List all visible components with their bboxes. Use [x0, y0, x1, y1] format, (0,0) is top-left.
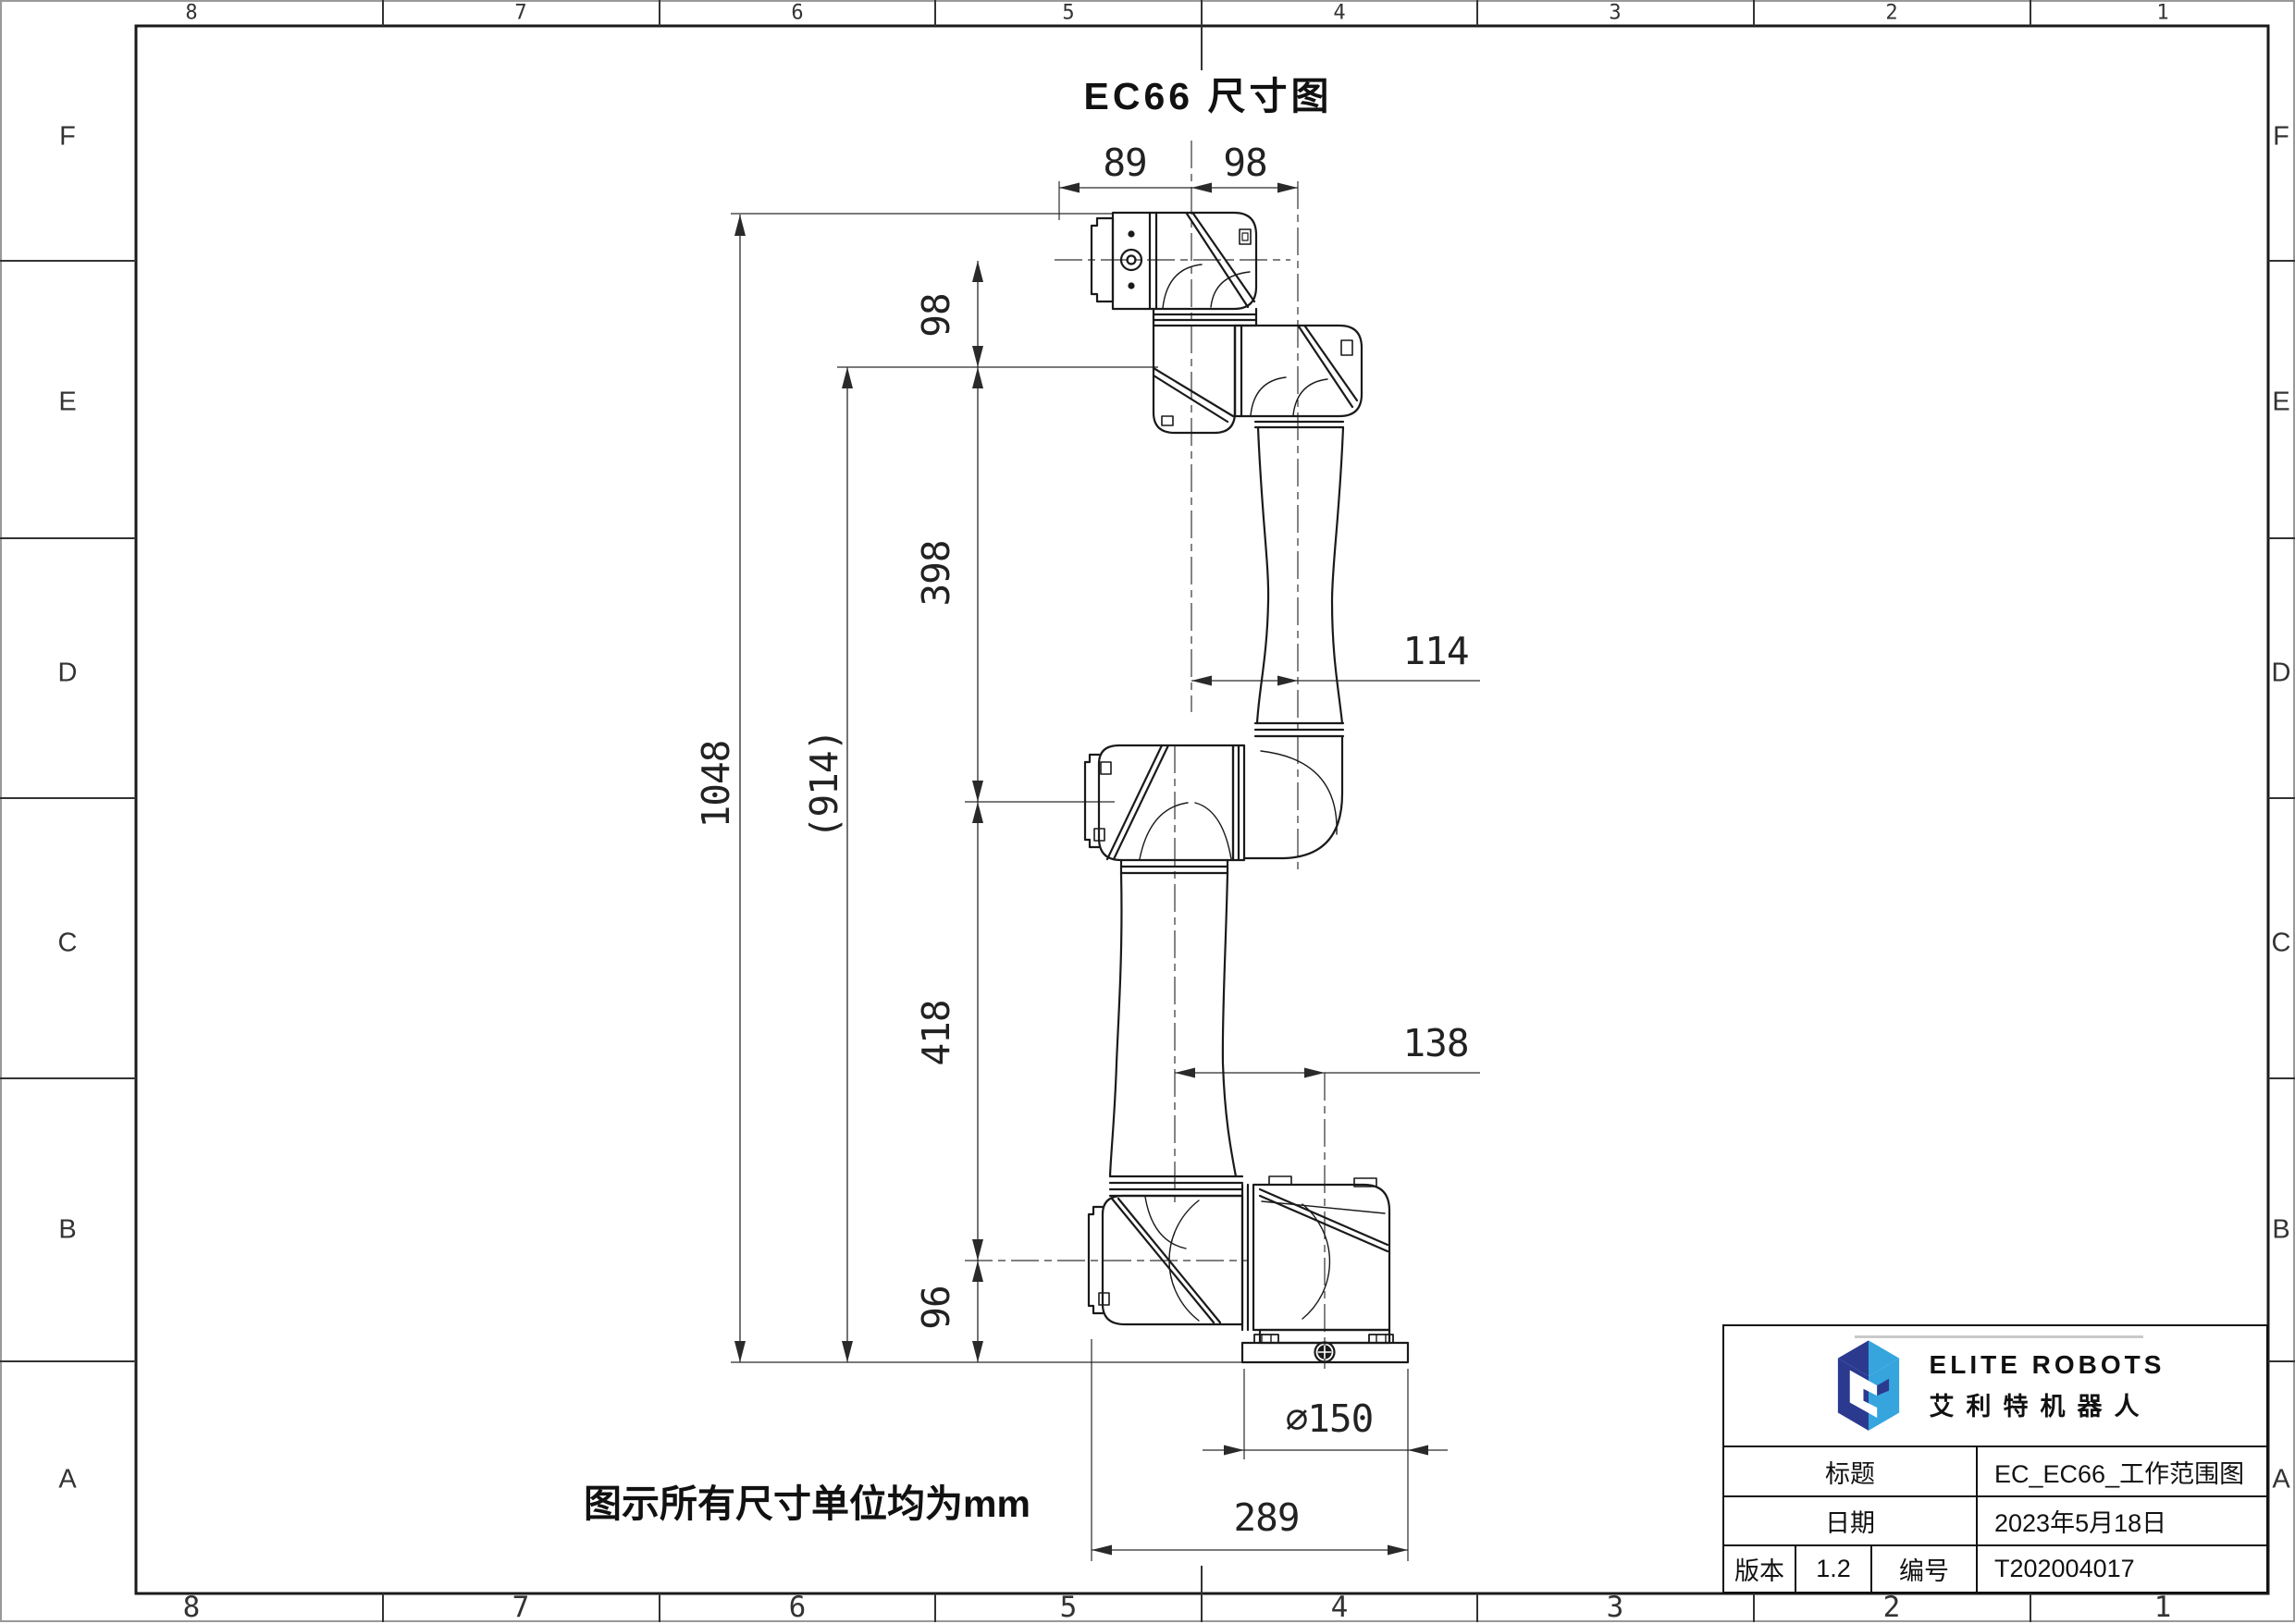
- logo-text: ELITE ROBOTS 艾利特机器人: [1930, 1350, 2165, 1422]
- zone-right-A: A: [2272, 1465, 2289, 1495]
- zone-bottom-2: 2: [1883, 1591, 1901, 1624]
- zone-bottom-8: 8: [183, 1591, 201, 1624]
- dim-89: 89: [1103, 141, 1146, 185]
- zone-bottom-3: 3: [1607, 1591, 1624, 1624]
- zone-bottom-4: 4: [1331, 1591, 1349, 1624]
- zone-right-E: E: [2272, 388, 2289, 418]
- elbow-bell: [1244, 736, 1342, 858]
- page-title: EC66 尺寸图: [1084, 65, 1333, 120]
- dim-418: 418: [914, 1000, 958, 1065]
- lower-arm-tube: [1110, 873, 1121, 1176]
- number-label-cell: 编号: [1870, 1544, 1978, 1593]
- zone-top-7: 7: [514, 2, 526, 25]
- dim-114: 114: [1402, 629, 1468, 673]
- dim-flange-diameter: ∅150: [1286, 1396, 1374, 1441]
- zone-left-A: A: [58, 1465, 76, 1495]
- zone-bottom-7: 7: [512, 1591, 530, 1624]
- dim-138: 138: [1402, 1021, 1468, 1065]
- dim-98-left: 98: [914, 293, 958, 337]
- dim-1048: 1048: [694, 741, 738, 829]
- zone-right-C: C: [2272, 929, 2291, 959]
- dim-289: 289: [1233, 1495, 1299, 1540]
- zone-top-4: 4: [1333, 2, 1345, 25]
- zone-right-F: F: [2273, 122, 2289, 153]
- version-label-cell: 版本: [1722, 1544, 1796, 1593]
- company-name-cn: 艾利特机器人: [1930, 1386, 2165, 1422]
- base-column: [1253, 1185, 1389, 1330]
- units-note: 图示所有尺寸单位均为mm: [584, 1472, 1030, 1528]
- zone-left-C: C: [58, 929, 78, 959]
- zone-left-B: B: [58, 1215, 76, 1246]
- elbow-housing: [1099, 745, 1233, 860]
- number-value-cell: T202004017: [1976, 1544, 2268, 1593]
- zone-top-2: 2: [1885, 2, 1897, 25]
- logo-divider-line: [1855, 1335, 2143, 1338]
- zone-right-B: B: [2272, 1215, 2289, 1246]
- zone-top-8: 8: [185, 2, 197, 25]
- zone-left-F: F: [59, 122, 76, 153]
- company-name-en: ELITE ROBOTS: [1930, 1350, 2165, 1380]
- title-block-logo-cell: ELITE ROBOTS 艾利特机器人: [1722, 1324, 2268, 1447]
- title-label-cell: 标题: [1722, 1446, 1978, 1497]
- zone-left-E: E: [58, 388, 76, 418]
- zone-top-1: 1: [2156, 2, 2168, 25]
- dim-96: 96: [914, 1286, 958, 1329]
- zone-top-3: 3: [1609, 2, 1621, 25]
- title-value-cell: EC_EC66_工作范围图: [1976, 1446, 2268, 1497]
- elite-robots-logo-icon: [1826, 1338, 1911, 1434]
- dim-398: 398: [914, 540, 958, 606]
- zone-bottom-1: 1: [2154, 1591, 2172, 1624]
- zone-top-6: 6: [791, 2, 803, 25]
- zone-top-5: 5: [1062, 2, 1074, 25]
- zone-bottom-6: 6: [789, 1591, 807, 1624]
- version-value-cell: 1.2: [1795, 1544, 1872, 1593]
- date-label-cell: 日期: [1722, 1495, 1978, 1546]
- dim-914: (914): [802, 730, 846, 839]
- zone-left-D: D: [58, 658, 78, 689]
- date-value-cell: 2023年5月18日: [1976, 1495, 2268, 1546]
- zone-bottom-5: 5: [1060, 1591, 1078, 1624]
- zone-right-D: D: [2272, 658, 2291, 689]
- robot-drawing: [1085, 213, 1408, 1362]
- upper-arm-tube: [1257, 427, 1268, 723]
- drawing-sheet: 89 98 98 398 418 96 1048 (914) 114 138 ∅…: [0, 0, 2295, 1622]
- dim-98-top: 98: [1223, 141, 1266, 185]
